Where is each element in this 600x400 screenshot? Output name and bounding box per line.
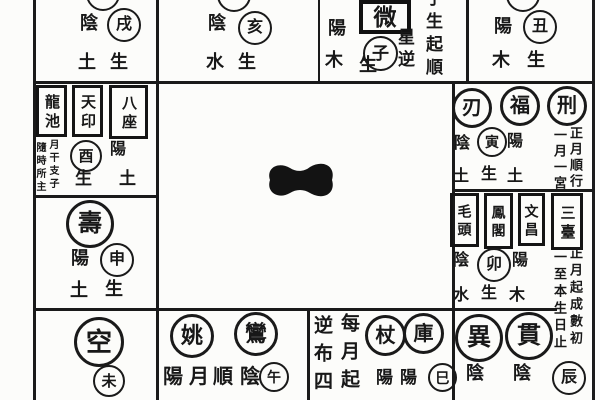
star-box-santai: 三臺 bbox=[551, 193, 583, 250]
branch-circle-mao: 卯 bbox=[477, 248, 511, 282]
note-column-right: 每月起 bbox=[339, 313, 358, 397]
star-circle-yao: 姚 bbox=[170, 314, 214, 358]
branch-yin: 寅 bbox=[485, 135, 499, 149]
polarity-label: 陽 bbox=[494, 17, 512, 35]
polarity-label: 陰 bbox=[208, 14, 226, 32]
note-char: 陽 bbox=[163, 367, 183, 387]
star-yi: 異 bbox=[467, 326, 491, 350]
element-label: 木 bbox=[492, 51, 510, 69]
sheng-label: 生 bbox=[481, 286, 497, 302]
branch-wu: 午 bbox=[267, 370, 281, 384]
star-circle-xing: 刑 bbox=[547, 86, 587, 126]
note-star-column: 星逆 bbox=[396, 28, 413, 72]
branch-you: 酉 bbox=[78, 149, 93, 164]
note-char: 順 bbox=[213, 367, 233, 387]
polarity-label: 陰 bbox=[513, 364, 531, 382]
star-circle-luan: 鸞 bbox=[234, 312, 278, 356]
star-ku: 庫 bbox=[414, 324, 434, 344]
star-shou: 壽 bbox=[78, 212, 102, 236]
star-kong: 空 bbox=[86, 329, 112, 355]
note-column-left: 逆布四 bbox=[312, 315, 331, 399]
star-box-maotou: 毛頭 bbox=[450, 193, 479, 247]
branch-circle-you: 酉 bbox=[70, 140, 102, 172]
divination-chart-page: 陰 戌 土 生 陰 亥 水 生 微 陽 子 木 生 星逆 子生起順 陽 丑 木 … bbox=[0, 0, 600, 400]
micro-note-right: 月干支子 bbox=[47, 139, 57, 191]
star-xing: 刑 bbox=[557, 96, 577, 116]
element-label: 土 bbox=[119, 170, 136, 187]
branch-circle-chou: 丑 bbox=[523, 10, 557, 44]
star-longchi: 龍池 bbox=[44, 94, 59, 132]
star-zhang: 杖 bbox=[376, 326, 396, 346]
star-circle-yi: 異 bbox=[455, 314, 503, 362]
grid-line-v-top-col23 bbox=[318, 0, 320, 82]
star-circle-zhang: 杖 bbox=[365, 315, 406, 356]
grid-line-v-bottom-col23 bbox=[307, 309, 310, 400]
star-guan: 貫 bbox=[517, 324, 541, 348]
polarity-label: 陽 bbox=[376, 369, 393, 386]
sheng-label: 生 bbox=[105, 280, 123, 298]
star-circle-guan: 貫 bbox=[505, 312, 553, 360]
branch-circle-chen: 辰 bbox=[552, 361, 586, 395]
branch-hai: 亥 bbox=[247, 20, 263, 36]
branch-mao: 卯 bbox=[486, 257, 502, 273]
branch-xu: 戌 bbox=[116, 17, 132, 33]
grid-line-h-row1 bbox=[33, 81, 595, 84]
star-maotou: 毛頭 bbox=[458, 204, 472, 240]
element-label: 土 bbox=[70, 281, 88, 299]
star-circle-shou: 壽 bbox=[66, 200, 114, 248]
grid-line-v-outer-left bbox=[33, 0, 36, 400]
element-label: 木 bbox=[509, 288, 525, 304]
branch-circle-wei: 未 bbox=[93, 365, 125, 397]
star-ziwei: 微 bbox=[374, 6, 397, 29]
element-label: 土 bbox=[453, 169, 469, 185]
note-order-column: 子生起順 bbox=[424, 0, 441, 81]
sheng-label: 生 bbox=[110, 53, 128, 71]
note-column-left: 一月一宮 bbox=[553, 128, 566, 192]
polarity-label: 陰 bbox=[80, 14, 98, 32]
star-box-longchi: 龍池 bbox=[36, 85, 67, 137]
element-label: 木 bbox=[325, 51, 343, 69]
star-circle-ku: 庫 bbox=[403, 313, 444, 354]
micro-note-left: 隨時所主 bbox=[34, 142, 44, 194]
star-fengge: 鳳閣 bbox=[492, 205, 506, 241]
star-yao: 姚 bbox=[181, 325, 203, 347]
sheng-label: 生 bbox=[527, 51, 545, 69]
star-tianyin: 天印 bbox=[80, 94, 95, 132]
branch-circle-hai: 亥 bbox=[238, 11, 272, 45]
element-label: 土 bbox=[507, 169, 523, 185]
star-circle-fu: 福 bbox=[500, 86, 540, 126]
clipped-star-circle bbox=[217, 0, 251, 12]
grid-line-v-top-col34 bbox=[466, 0, 469, 84]
note-char: 月 bbox=[189, 367, 209, 387]
polarity-label: 陰 bbox=[454, 136, 470, 152]
star-bazuo: 八座 bbox=[121, 95, 136, 133]
star-fu: 福 bbox=[510, 96, 530, 116]
note-char: 陰 bbox=[240, 367, 260, 387]
star-box-tianyin: 天印 bbox=[72, 85, 103, 137]
star-ren: 刃 bbox=[462, 98, 482, 118]
polarity-label: 陽 bbox=[400, 369, 417, 386]
branch-wei: 未 bbox=[101, 374, 116, 389]
note-column-right: 正月順行 bbox=[569, 126, 582, 190]
note-column-left: 一至本生日止 bbox=[553, 250, 566, 352]
star-wenchang: 文昌 bbox=[525, 204, 539, 240]
branch-circle-si: 巳 bbox=[428, 363, 457, 392]
sheng-label: 生 bbox=[238, 53, 256, 71]
note-column-right: 正月起成數初 bbox=[569, 246, 582, 348]
polarity-label: 陽 bbox=[512, 253, 528, 269]
star-box-wenchang: 文昌 bbox=[518, 193, 545, 246]
grid-line-v-col1 bbox=[156, 0, 159, 400]
polarity-label: 陰 bbox=[453, 253, 469, 269]
star-box-fengge: 鳳閣 bbox=[484, 193, 513, 249]
polarity-label: 陽 bbox=[71, 249, 89, 267]
star-circle-kong: 空 bbox=[74, 317, 124, 367]
polarity-label: 陰 bbox=[466, 364, 484, 382]
grid-line-h-row3 bbox=[33, 308, 557, 311]
polarity-label: 陽 bbox=[507, 134, 523, 150]
branch-circle-yin: 寅 bbox=[477, 127, 507, 157]
grid-line-h-row2-left bbox=[33, 195, 159, 198]
star-box-bazuo: 八座 bbox=[109, 85, 148, 139]
branch-si: 巳 bbox=[436, 371, 450, 385]
element-label: 水 bbox=[206, 53, 224, 71]
star-luan: 鸞 bbox=[245, 323, 267, 345]
branch-circle-wu: 午 bbox=[259, 362, 289, 392]
polarity-label: 陽 bbox=[328, 19, 346, 37]
sheng-label: 生 bbox=[75, 170, 92, 187]
star-circle-ren: 刃 bbox=[452, 88, 492, 128]
branch-circle-xu: 戌 bbox=[107, 8, 141, 42]
element-label: 土 bbox=[78, 53, 96, 71]
sheng-label: 生 bbox=[359, 56, 377, 74]
branch-shen: 申 bbox=[109, 252, 125, 268]
ink-blot bbox=[258, 152, 342, 208]
star-santai: 三臺 bbox=[560, 205, 575, 243]
branch-chou: 丑 bbox=[532, 19, 548, 35]
grid-line-v-outer-right bbox=[592, 0, 595, 400]
polarity-label: 陽 bbox=[110, 142, 126, 158]
element-label: 水 bbox=[453, 288, 469, 304]
branch-chen: 辰 bbox=[561, 370, 577, 386]
sheng-label: 生 bbox=[481, 167, 497, 183]
branch-circle-shen: 申 bbox=[100, 243, 134, 277]
